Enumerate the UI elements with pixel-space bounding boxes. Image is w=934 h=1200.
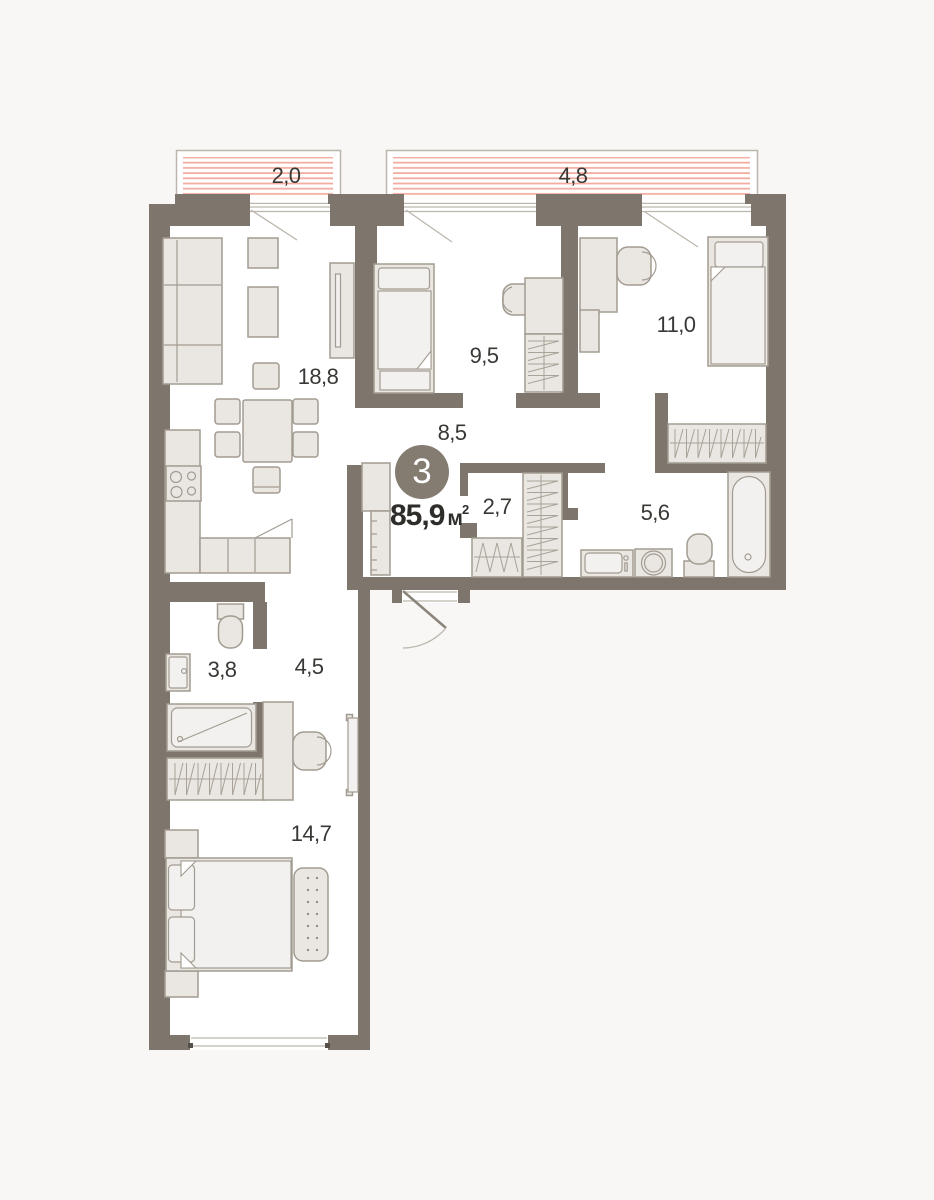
- room-count: 3: [412, 452, 431, 492]
- floor-plan: 2,0 4,8 18,8 9,5 11,0 8,5 2,7 5,6 3,8 4,…: [0, 0, 934, 1200]
- blanket: [181, 861, 291, 968]
- room-count-badge: 3: [395, 445, 449, 499]
- shower: [167, 704, 256, 751]
- dining-table: [243, 400, 292, 462]
- room-area-label-bathroom: 5,6: [641, 500, 670, 526]
- chair: [215, 432, 240, 457]
- balcony-hatch: [183, 157, 333, 198]
- side-table: [248, 238, 278, 268]
- pillow: [379, 268, 430, 289]
- total-area-value: 85,9: [390, 499, 444, 532]
- tv-stand: [330, 263, 354, 358]
- desk-chair: [617, 247, 656, 285]
- entrance-door: [402, 590, 458, 648]
- sofa: [163, 238, 222, 384]
- room-area-label-closet: 2,7: [483, 494, 512, 520]
- bathtub: [728, 472, 770, 577]
- stove: [166, 466, 201, 501]
- fridge: [362, 463, 390, 511]
- total-area: 85,9м2: [390, 499, 468, 533]
- bed: [374, 264, 434, 393]
- total-area-unit: м: [447, 507, 462, 530]
- dresser: [525, 334, 563, 392]
- nightstand: [165, 830, 198, 858]
- door-swing-arc: [403, 628, 446, 648]
- washing-machine: [635, 549, 672, 577]
- chair: [215, 399, 240, 424]
- desk-chair: [293, 732, 331, 770]
- room-area-label-bedroom2: 9,5: [470, 343, 499, 369]
- wardrobe: [167, 758, 265, 800]
- room-area-label-master-bedroom: 14,7: [291, 821, 331, 847]
- shoe-rack: [472, 538, 522, 577]
- balcony-area-label: 4,8: [559, 163, 588, 189]
- wardrobe: [523, 473, 562, 577]
- total-area-sup: 2: [462, 502, 468, 517]
- chair: [293, 432, 318, 457]
- room-area-label-bedroom3: 11,0: [657, 312, 696, 338]
- room-area-label-corridor: 4,5: [295, 654, 324, 680]
- open-door-leaf: [347, 715, 359, 796]
- toilet: [684, 534, 714, 577]
- bed: [708, 237, 768, 366]
- double-bed: [166, 858, 292, 971]
- toilet: [218, 604, 244, 648]
- room-area-label-living: 18,8: [298, 364, 338, 390]
- stool: [253, 467, 280, 493]
- desk: [263, 702, 293, 800]
- pillow: [715, 242, 763, 267]
- rug: [294, 868, 328, 961]
- sink: [166, 654, 190, 691]
- room-area-label-wc: 3,8: [208, 657, 237, 683]
- blanket: [711, 267, 765, 364]
- blanket: [378, 291, 431, 369]
- sink: [581, 550, 633, 577]
- stool: [253, 363, 279, 389]
- wardrobe: [668, 424, 766, 463]
- room-area-label-hallway: 8,5: [438, 420, 467, 446]
- coffee-table: [248, 287, 278, 337]
- nightstand: [165, 971, 198, 997]
- shelf-unit: [371, 511, 390, 575]
- desk: [525, 278, 563, 334]
- window: [190, 1035, 328, 1050]
- bed-bench: [380, 371, 430, 390]
- floor-plan-drawing: [0, 0, 934, 1200]
- chair: [293, 399, 318, 424]
- balcony-area-label: 2,0: [272, 163, 301, 189]
